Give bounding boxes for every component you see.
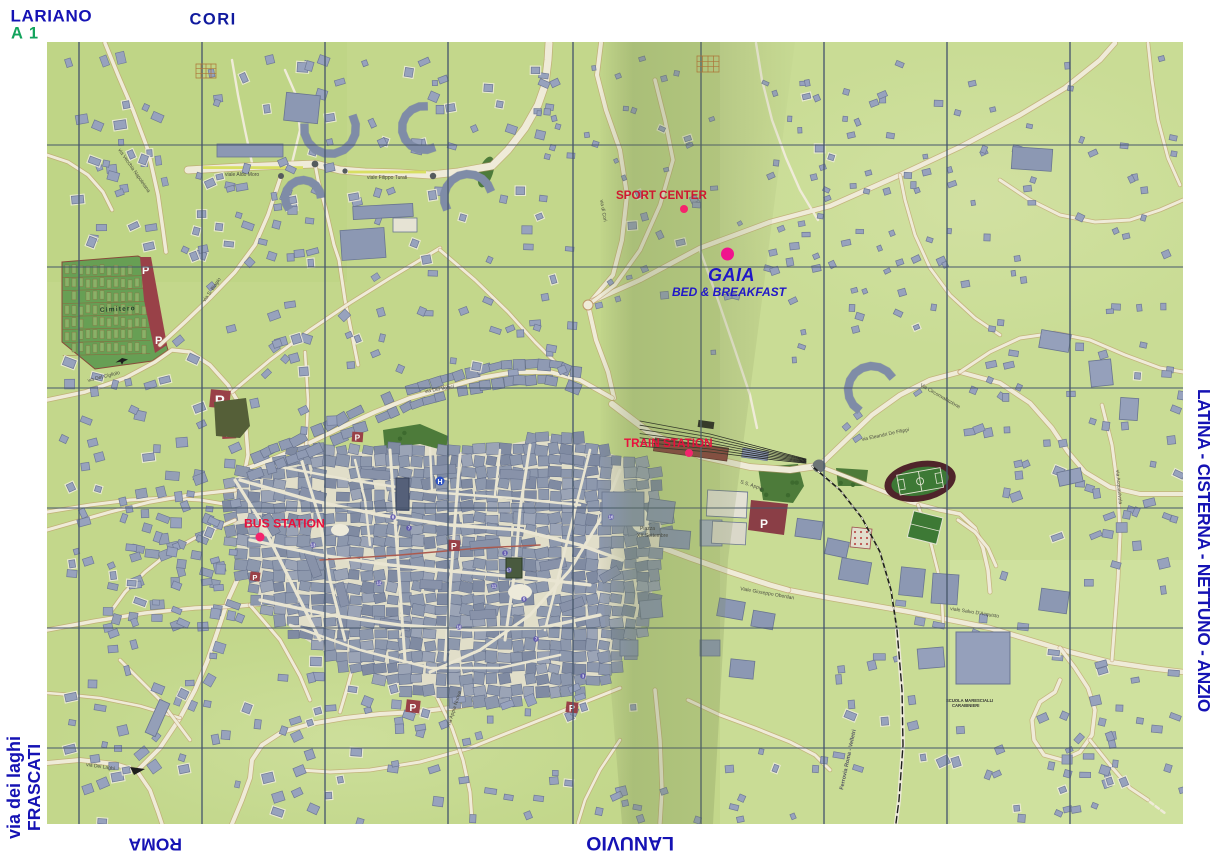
- svg-text:TRAIN STATION: TRAIN STATION: [624, 437, 713, 450]
- svg-text:FRASCATI: FRASCATI: [24, 744, 44, 831]
- svg-text:A 1: A 1: [11, 25, 39, 43]
- svg-text:SPORT CENTER: SPORT CENTER: [616, 189, 707, 202]
- svg-text:LANUVIO: LANUVIO: [586, 832, 674, 854]
- svg-text:GAIA: GAIA: [708, 265, 755, 285]
- svg-text:LARIANO: LARIANO: [11, 7, 93, 26]
- svg-text:CORI: CORI: [190, 11, 237, 29]
- svg-text:BED & BREAKFAST: BED & BREAKFAST: [672, 285, 788, 299]
- svg-text:via dei laghi: via dei laghi: [4, 736, 24, 839]
- svg-text:LATINA - CISTERNA - NETTUNO -: LATINA - CISTERNA - NETTUNO - ANZIO: [1194, 389, 1214, 712]
- svg-text:ROMA: ROMA: [128, 835, 182, 855]
- svg-text:BUS STATION: BUS STATION: [244, 517, 325, 531]
